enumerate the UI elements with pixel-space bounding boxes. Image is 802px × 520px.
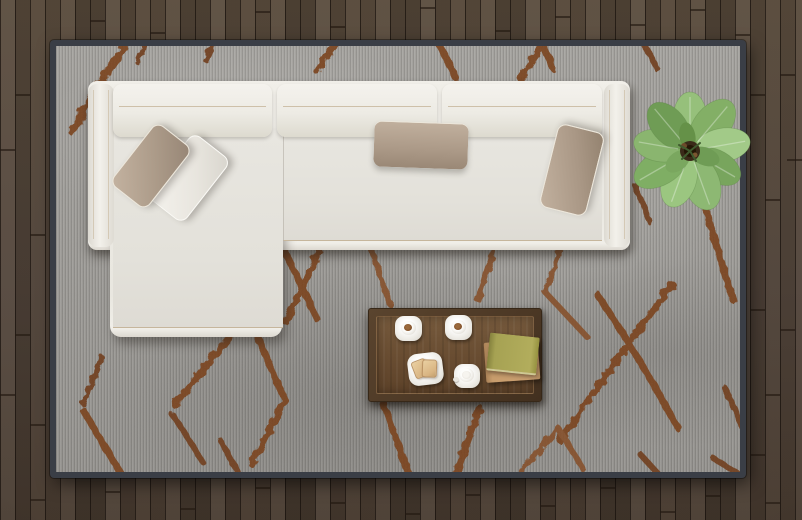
potted-plant	[626, 89, 754, 215]
book-top-olive	[486, 332, 540, 375]
espresso-cup-right	[451, 320, 466, 334]
plant-center-soil	[679, 141, 700, 161]
sofa-arm-left	[88, 84, 114, 247]
saucer-right	[445, 315, 472, 340]
coffee-surface	[454, 323, 462, 330]
milk-surface	[462, 371, 471, 379]
coffee-table	[368, 308, 542, 402]
espresso-cup-left	[401, 321, 416, 335]
milk-plate	[454, 364, 480, 388]
coffee-surface	[404, 324, 412, 331]
pillow-taupe-middle	[373, 120, 469, 169]
cup-handle	[453, 377, 459, 382]
living-room-scene	[0, 0, 802, 520]
back-cushion-left	[113, 84, 272, 137]
milk-cup	[459, 368, 474, 382]
toast-slice	[422, 359, 438, 378]
saucer-left	[395, 316, 422, 341]
toast-plate	[406, 351, 445, 387]
